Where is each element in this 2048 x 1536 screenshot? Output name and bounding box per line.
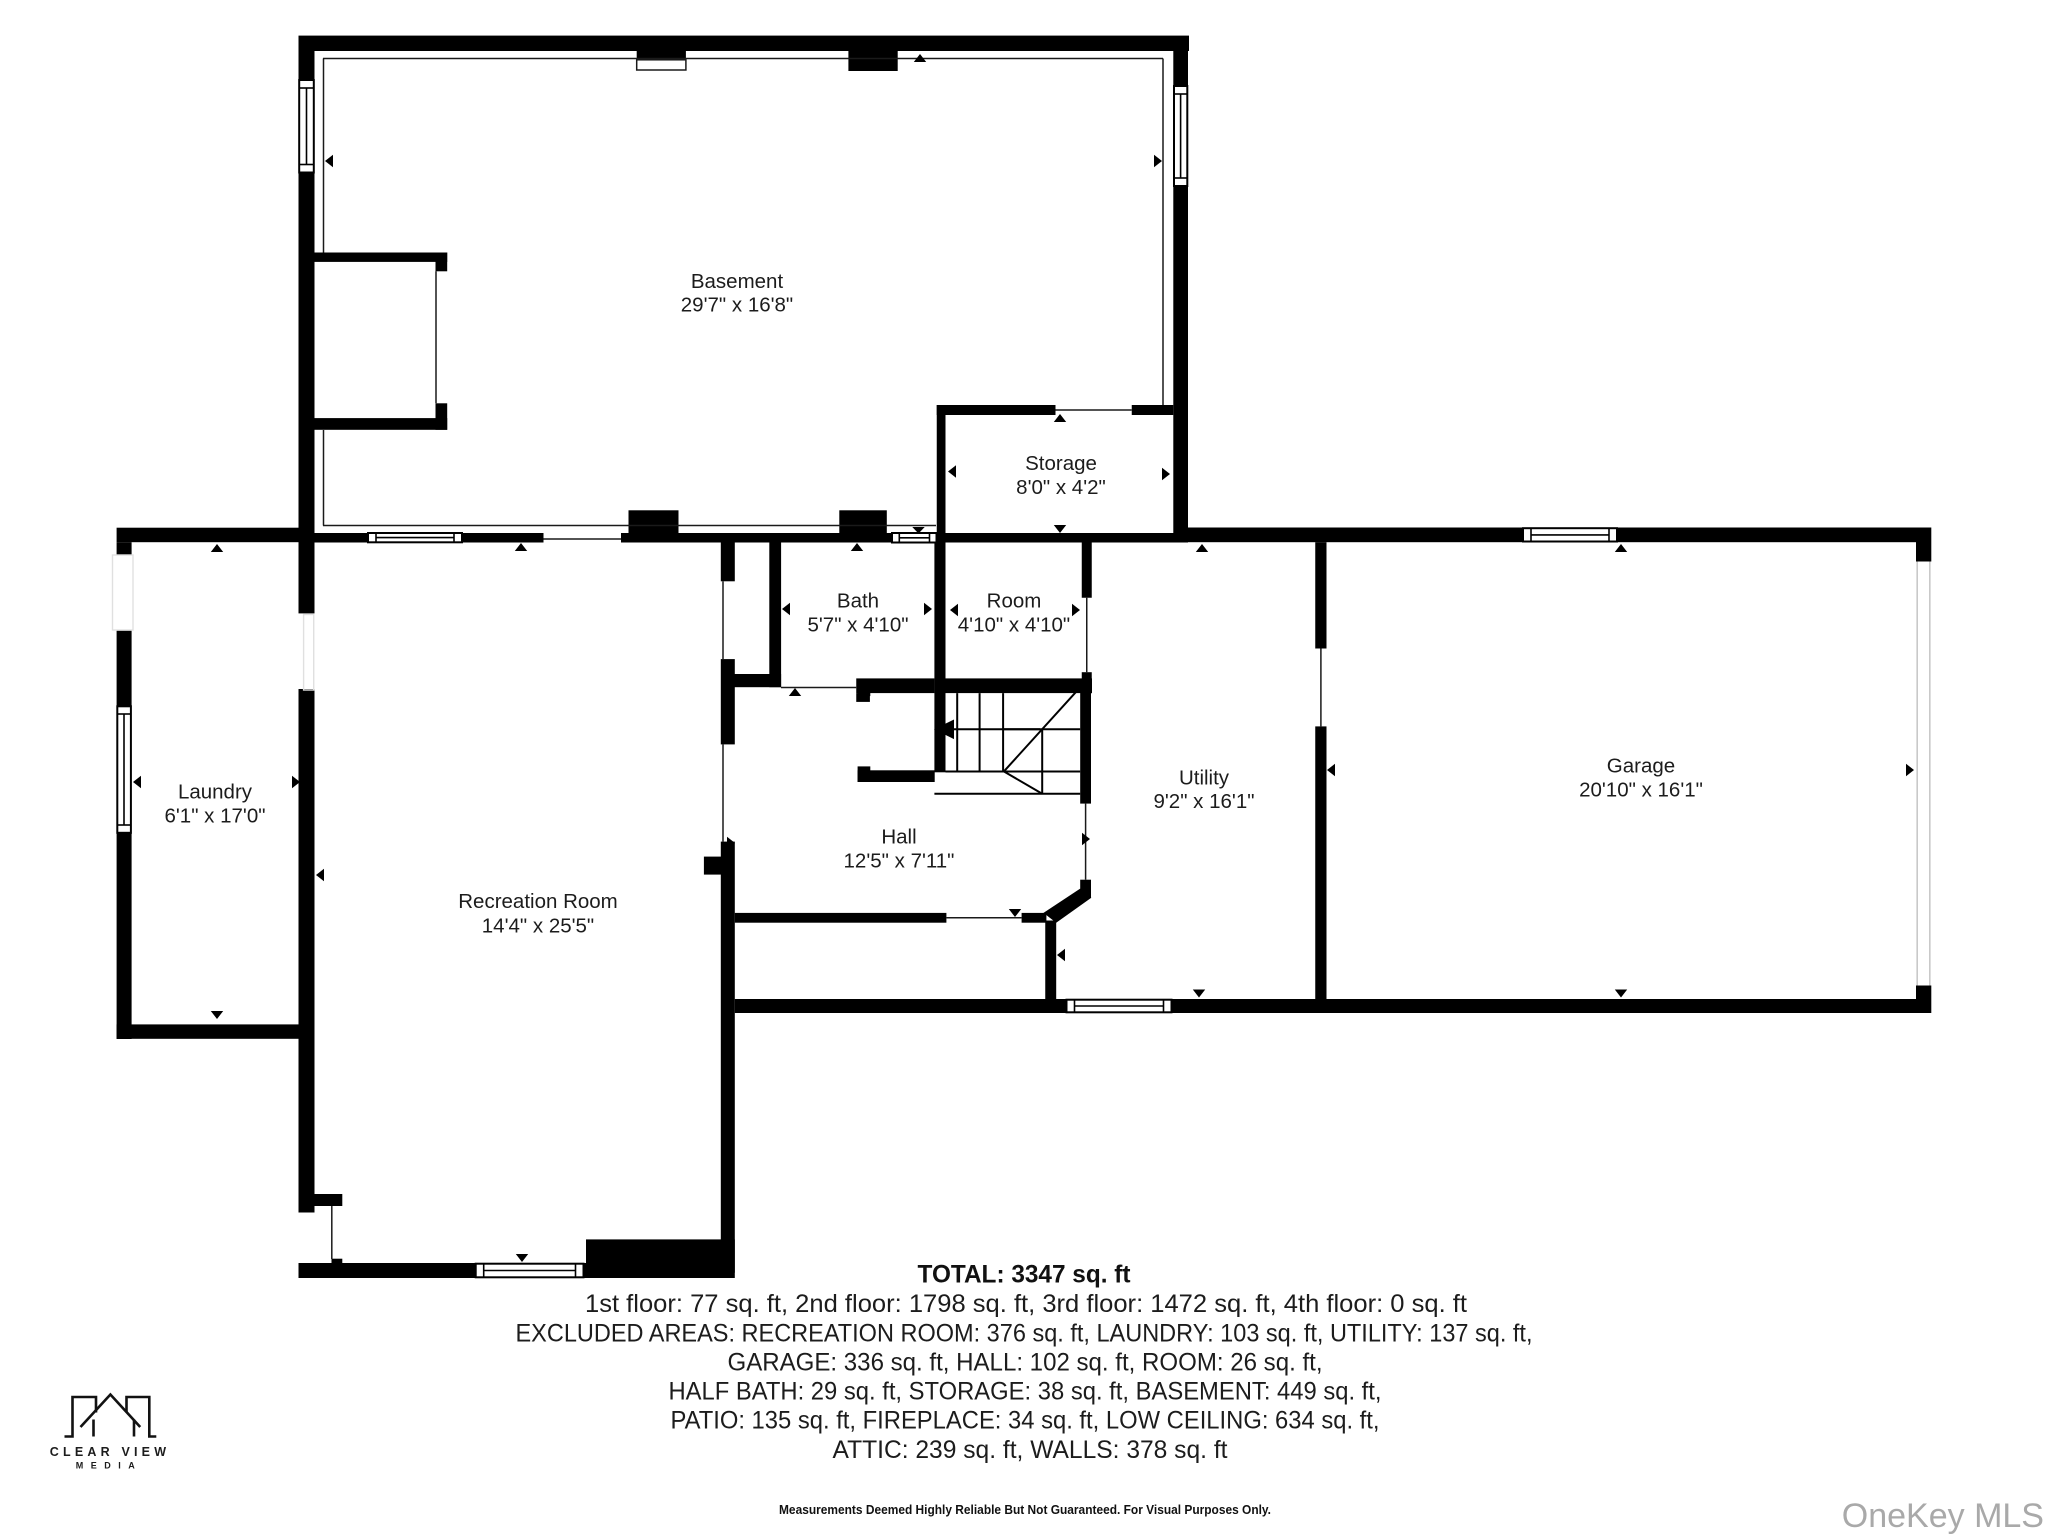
svg-text:4'10" x 4'10": 4'10" x 4'10" xyxy=(958,614,1070,637)
svg-text:Basement: Basement xyxy=(691,270,784,293)
svg-text:Garage: Garage xyxy=(1607,755,1675,778)
svg-text:Laundry: Laundry xyxy=(178,781,253,804)
svg-text:6'1" x 17'0": 6'1" x 17'0" xyxy=(164,805,265,828)
svg-text:OneKey MLS: OneKey MLS xyxy=(1842,1497,2044,1535)
svg-text:5'7" x 4'10": 5'7" x 4'10" xyxy=(807,614,908,637)
svg-text:Recreation Room: Recreation Room xyxy=(458,890,618,913)
svg-text:EXCLUDED AREAS: RECREATION ROO: EXCLUDED AREAS: RECREATION ROOM: 376 sq.… xyxy=(516,1320,1533,1348)
svg-text:Utility: Utility xyxy=(1179,767,1230,790)
svg-text:ATTIC: 239 sq. ft, WALLS: 378: ATTIC: 239 sq. ft, WALLS: 378 sq. ft xyxy=(833,1436,1228,1464)
svg-text:9'2" x 16'1": 9'2" x 16'1" xyxy=(1153,790,1254,813)
svg-text:29'7" x 16'8": 29'7" x 16'8" xyxy=(681,294,793,317)
svg-text:Storage: Storage xyxy=(1025,452,1097,475)
svg-text:GARAGE: 336 sq. ft, HALL: 102: GARAGE: 336 sq. ft, HALL: 102 sq. ft, RO… xyxy=(728,1349,1323,1377)
svg-text:PATIO: 135 sq. ft, FIREPLACE:: PATIO: 135 sq. ft, FIREPLACE: 34 sq. ft,… xyxy=(671,1407,1380,1435)
svg-text:8'0" x 4'2": 8'0" x 4'2" xyxy=(1016,476,1106,499)
svg-text:MEDIA: MEDIA xyxy=(76,1461,143,1471)
svg-text:20'10" x 16'1": 20'10" x 16'1" xyxy=(1579,779,1703,802)
svg-text:1st floor: 77 sq. ft, 2nd floo: 1st floor: 77 sq. ft, 2nd floor: 1798 sq… xyxy=(585,1290,1467,1318)
svg-text:Bath: Bath xyxy=(837,590,879,613)
svg-text:Room: Room xyxy=(987,590,1042,613)
svg-text:Hall: Hall xyxy=(881,826,916,849)
svg-text:HALF BATH: 29 sq. ft, STORAGE:: HALF BATH: 29 sq. ft, STORAGE: 38 sq. ft… xyxy=(669,1378,1382,1406)
svg-text:12'5" x 7'11": 12'5" x 7'11" xyxy=(844,850,955,873)
svg-text:Measurements Deemed Highly Rel: Measurements Deemed Highly Reliable But … xyxy=(779,1503,1271,1517)
svg-text:14'4" x 25'5": 14'4" x 25'5" xyxy=(482,915,594,938)
svg-text:TOTAL: 3347 sq. ft: TOTAL: 3347 sq. ft xyxy=(918,1261,1132,1289)
svg-text:CLEAR VIEW: CLEAR VIEW xyxy=(50,1445,170,1459)
